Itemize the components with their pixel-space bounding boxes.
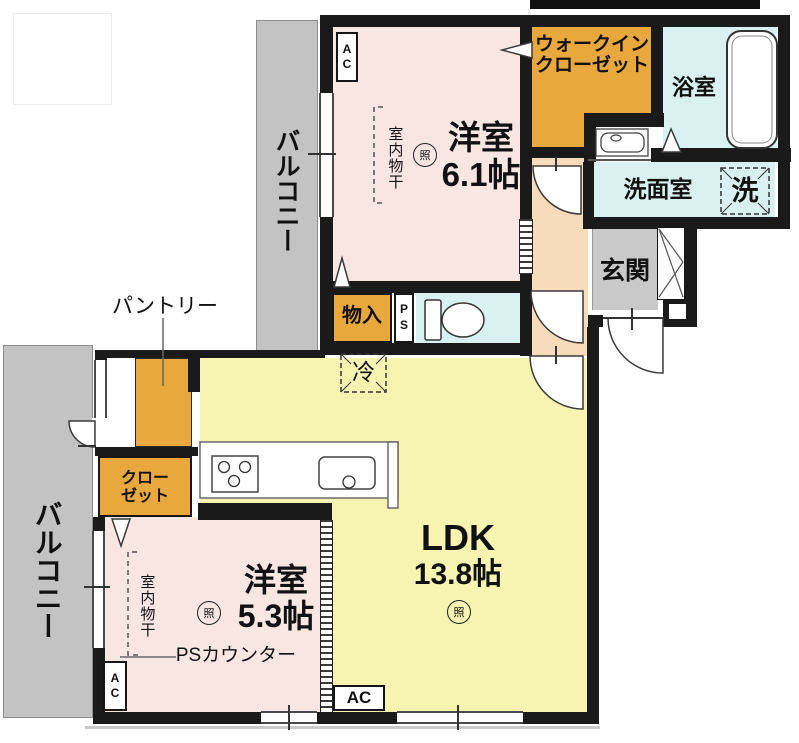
bathroom-text: 浴室 bbox=[672, 76, 716, 101]
door-mark-wic bbox=[502, 42, 532, 58]
pantry-text: パントリー bbox=[112, 295, 218, 319]
bathroom-label: 浴室 bbox=[662, 74, 726, 102]
door-arc-wic bbox=[533, 166, 581, 214]
light-symbol-bedroom53: 照 bbox=[197, 601, 221, 625]
ac-text: AC bbox=[108, 671, 122, 701]
kitchen-counter-return bbox=[388, 442, 398, 508]
indoor-drying-61-text: 室内物干 bbox=[386, 126, 403, 190]
bedroom61-label: 洋室 6.1帖 bbox=[425, 116, 537, 198]
ac-box-bedroom53: AC bbox=[103, 661, 127, 711]
floor-plan: PS bbox=[0, 0, 799, 743]
ldk-size-label: 13.8帖 bbox=[398, 557, 518, 593]
fridge-text: 冷 bbox=[352, 360, 375, 386]
bathtub bbox=[727, 31, 777, 148]
shoe-cabinet-line bbox=[659, 262, 683, 297]
light-symbol-bedroom61: 照 bbox=[413, 143, 437, 167]
door-arc-front-door bbox=[608, 318, 663, 373]
ac-text: AC bbox=[347, 688, 372, 708]
balcony-lower-text: バルコニー bbox=[31, 500, 62, 640]
washer-label: 洗 bbox=[722, 169, 768, 213]
wic-line1: ウォークイン bbox=[535, 34, 649, 55]
washbasin-tap bbox=[611, 135, 621, 141]
balcony-upper-label: バルコニー bbox=[256, 105, 316, 275]
light-symbol-ldk: 照 bbox=[447, 600, 471, 624]
ldk-name-label: LDK bbox=[408, 518, 508, 558]
door-mark-bath-folding bbox=[662, 129, 681, 152]
bedroom53-name: 洋室 bbox=[244, 563, 308, 599]
indoor-drying-53-text: 室内物干 bbox=[138, 574, 155, 638]
washroom-text: 洗面室 bbox=[624, 177, 693, 203]
bedroom61-size: 6.1帖 bbox=[442, 157, 521, 194]
shoe-cabinet-line bbox=[659, 229, 683, 262]
washroom-label: 洗面室 bbox=[608, 176, 708, 204]
door-arc-balcony-kitchen bbox=[69, 421, 95, 447]
toilet-bowl bbox=[442, 303, 484, 337]
ac-box-bedroom61: AC bbox=[336, 32, 358, 82]
balcony-lower-label: バルコニー bbox=[16, 455, 78, 685]
ac-text: AC bbox=[340, 42, 354, 72]
bedroom53-label: 洋室 5.3帖 bbox=[222, 560, 330, 638]
bedroom61-name: 洋室 bbox=[448, 120, 514, 157]
pantry-label: パントリー bbox=[110, 294, 220, 320]
ac-box-ldk: AC bbox=[333, 685, 385, 711]
shoe-cabinet-line bbox=[659, 229, 683, 297]
door-mark-closet bbox=[112, 519, 130, 546]
indoor-drying-53: 室内物干 bbox=[135, 556, 157, 656]
ldk-name: LDK bbox=[421, 518, 495, 558]
storage-text: 物入 bbox=[342, 305, 382, 327]
washer-text: 洗 bbox=[732, 176, 759, 206]
ps-counter-label: PSカウンター bbox=[176, 644, 296, 668]
fridge-label: 冷 bbox=[342, 356, 385, 390]
kitchen-sink bbox=[319, 457, 375, 489]
door-arc-entrance-hall bbox=[531, 291, 583, 343]
washbasin-bowl bbox=[601, 133, 644, 152]
bedroom53-size: 5.3帖 bbox=[238, 599, 315, 635]
storage-label: 物入 bbox=[334, 303, 390, 329]
toilet-tank bbox=[425, 300, 441, 340]
entrance-label: 玄関 bbox=[594, 255, 656, 287]
closet-line1: クロー bbox=[121, 470, 169, 488]
ps-counter-text: PSカウンター bbox=[176, 645, 296, 666]
light-char: 照 bbox=[454, 604, 465, 620]
wic-line2: クローゼット bbox=[535, 55, 649, 76]
ldk-size: 13.8帖 bbox=[414, 558, 502, 592]
entrance-text: 玄関 bbox=[600, 257, 650, 285]
closet-line2: ゼット bbox=[121, 488, 169, 506]
light-char: 照 bbox=[420, 147, 431, 163]
wic-label: ウォークイン クローゼット bbox=[533, 31, 651, 79]
light-char: 照 bbox=[204, 605, 215, 621]
closet-label: クロー ゼット bbox=[102, 466, 188, 510]
balcony-upper-text: バルコニー bbox=[272, 128, 300, 253]
door-mark-storage bbox=[334, 258, 350, 287]
indoor-drying-61: 室内物干 bbox=[383, 112, 405, 204]
